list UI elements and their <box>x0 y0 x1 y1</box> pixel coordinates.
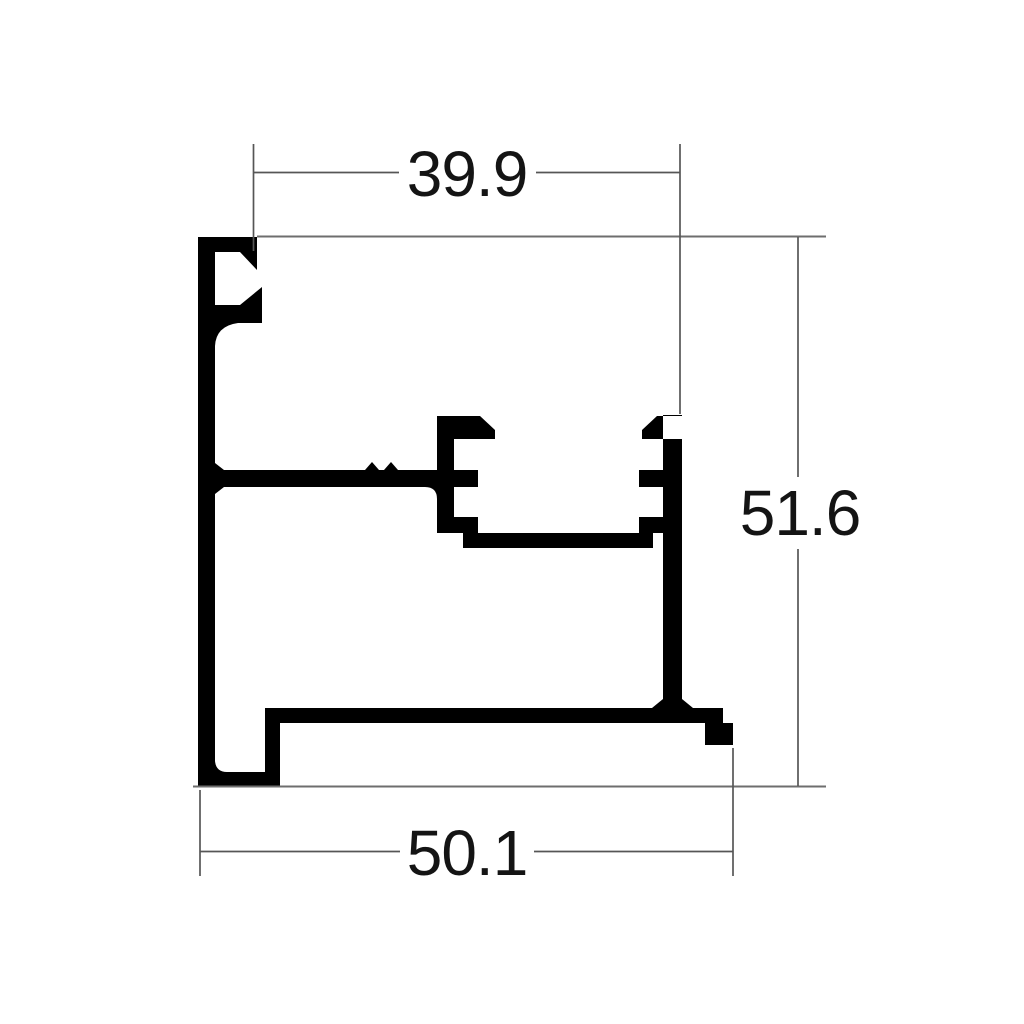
profile-outline <box>198 237 733 787</box>
technical-drawing: 39.9 51.6 50.1 <box>0 0 1024 1024</box>
dimension-label-top: 39.9 <box>407 138 528 210</box>
dimension-right-height: 51.6 <box>740 237 861 786</box>
dimension-annotations: 39.9 51.6 50.1 <box>193 138 860 889</box>
dimension-label-bottom: 50.1 <box>407 817 528 889</box>
dimension-label-right: 51.6 <box>740 477 861 549</box>
profile-cross-section <box>198 237 733 787</box>
dimension-top-width: 39.9 <box>254 138 681 414</box>
drawing-canvas: 39.9 51.6 50.1 <box>0 0 1024 1024</box>
